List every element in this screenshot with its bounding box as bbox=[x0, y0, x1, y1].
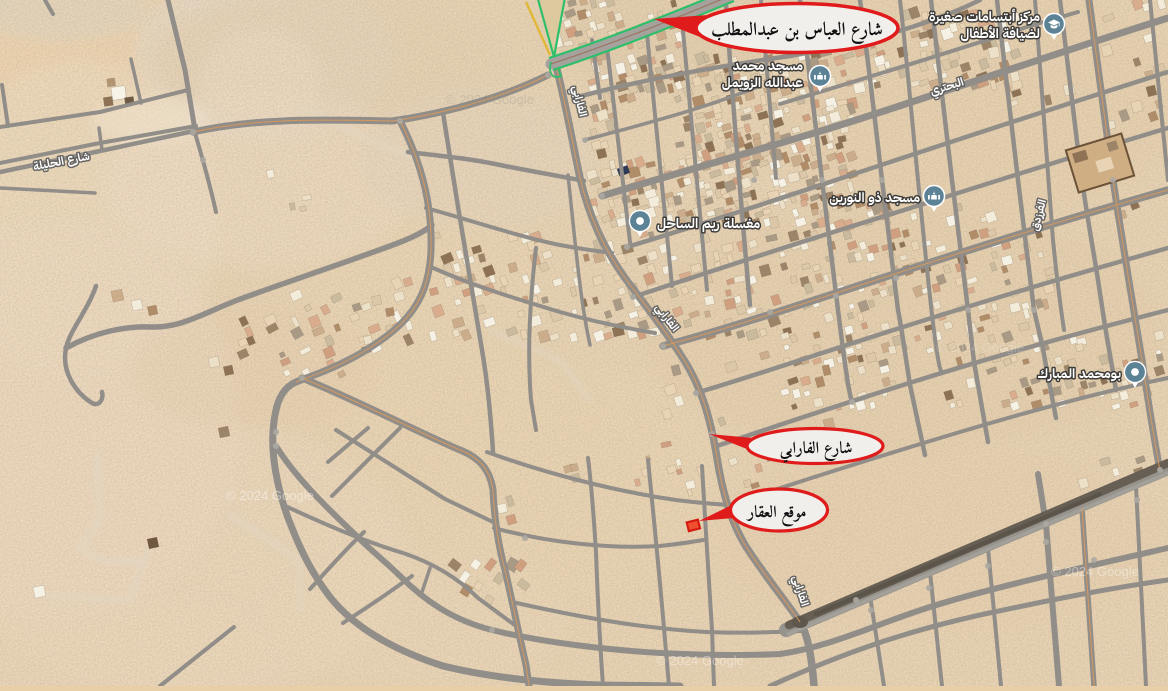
svg-text:© 2024 Google: © 2024 Google bbox=[1051, 564, 1139, 579]
svg-text:© 2024 Google: © 2024 Google bbox=[936, 340, 1024, 355]
svg-text:© 2024 Google: © 2024 Google bbox=[446, 92, 534, 107]
svg-text:© 2024 Google: © 2024 Google bbox=[656, 653, 744, 668]
svg-text:© 2024 Google: © 2024 Google bbox=[226, 488, 314, 503]
